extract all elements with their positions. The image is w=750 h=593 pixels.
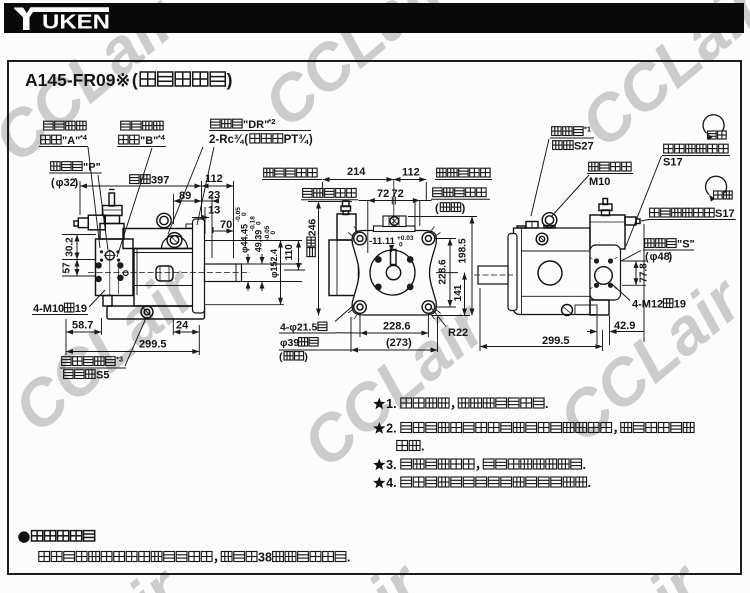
- svg-text:19: 19: [674, 299, 686, 311]
- svg-text:4-φ21.5: 4-φ21.5: [280, 322, 317, 334]
- svg-text:M10: M10: [589, 176, 610, 188]
- svg-text:φ44.45: φ44.45: [240, 224, 250, 253]
- svg-text:1.: 1.: [386, 397, 396, 411]
- svg-text:0: 0: [270, 231, 277, 235]
- svg-text:): ): [462, 203, 466, 215]
- svg-text:S27: S27: [574, 141, 594, 153]
- svg-text:.: .: [583, 458, 586, 472]
- svg-text:CCLair: CCLair: [0, 251, 213, 446]
- svg-text:*4: *4: [80, 133, 88, 142]
- svg-text:S17: S17: [715, 208, 735, 220]
- svg-text:4-M10: 4-M10: [33, 303, 64, 315]
- svg-text:(: (: [435, 203, 439, 215]
- svg-text:"S": "S": [677, 239, 695, 251]
- svg-text:72: 72: [377, 188, 389, 200]
- svg-text:"DR": "DR": [243, 119, 269, 131]
- svg-text:0: 0: [399, 242, 403, 249]
- svg-text:.: .: [588, 476, 591, 490]
- svg-text:19: 19: [75, 303, 87, 315]
- svg-text:(: (: [244, 134, 248, 146]
- svg-text:R22: R22: [448, 327, 468, 339]
- svg-text:，: ，: [213, 551, 226, 565]
- svg-text:198.5: 198.5: [458, 238, 469, 263]
- svg-text:，: ，: [475, 458, 488, 472]
- svg-text:*2: *2: [268, 117, 275, 126]
- svg-text:φ39: φ39: [280, 337, 299, 349]
- svg-text:299.5: 299.5: [139, 339, 167, 351]
- svg-text:S5: S5: [96, 370, 109, 382]
- svg-text:112: 112: [402, 167, 420, 179]
- svg-text:13: 13: [208, 205, 220, 217]
- svg-text:): ): [74, 177, 78, 189]
- svg-text:2.: 2.: [386, 422, 396, 436]
- svg-text:24: 24: [176, 320, 189, 332]
- svg-text:(: (: [51, 177, 55, 189]
- svg-text:φ152.4: φ152.4: [269, 249, 279, 278]
- svg-text:*4: *4: [158, 133, 166, 142]
- svg-text:): ): [227, 70, 233, 90]
- svg-text:S17: S17: [663, 157, 683, 169]
- svg-text:"A": "A": [62, 135, 80, 147]
- svg-text:(273): (273): [386, 337, 412, 349]
- svg-text:228.6: 228.6: [438, 259, 449, 284]
- svg-text:φ32: φ32: [56, 177, 76, 189]
- svg-text:"B": "B": [140, 135, 158, 147]
- svg-text:246: 246: [306, 219, 318, 237]
- svg-text:214: 214: [347, 166, 366, 178]
- svg-text:.: .: [421, 440, 424, 454]
- svg-text:2-Rc¾: 2-Rc¾: [209, 134, 245, 146]
- svg-text:*3: *3: [116, 354, 123, 363]
- svg-text:): ): [668, 251, 672, 263]
- svg-text:30.2: 30.2: [65, 237, 76, 257]
- svg-text:58.7: 58.7: [72, 320, 93, 332]
- svg-text:.: .: [545, 397, 548, 411]
- svg-text:*1: *1: [584, 124, 591, 133]
- svg-text:CCLair: CCLair: [505, 546, 718, 593]
- svg-text:，: ，: [613, 422, 626, 436]
- svg-text:0: 0: [256, 221, 263, 225]
- svg-text:70: 70: [220, 219, 232, 231]
- svg-text:，: ，: [450, 397, 463, 411]
- svg-text:φ48: φ48: [650, 251, 670, 263]
- svg-text:42.9: 42.9: [614, 320, 635, 332]
- svg-text:228.6: 228.6: [383, 321, 411, 333]
- svg-text:49.39: 49.39: [254, 230, 264, 253]
- svg-text:PT¾: PT¾: [284, 134, 310, 146]
- svg-text:"P": "P": [83, 162, 101, 174]
- svg-text:72: 72: [392, 188, 404, 200]
- svg-text:4.: 4.: [386, 476, 396, 490]
- svg-text:57: 57: [62, 262, 73, 274]
- svg-text:0: 0: [241, 212, 248, 216]
- svg-text:38: 38: [258, 551, 272, 565]
- svg-text:110: 110: [284, 244, 295, 261]
- svg-text:397: 397: [151, 175, 169, 187]
- svg-text:.: .: [347, 551, 350, 565]
- svg-text:): ): [304, 351, 308, 363]
- svg-text:299.5: 299.5: [542, 335, 570, 347]
- svg-text:): ): [309, 134, 313, 146]
- svg-text:3.: 3.: [386, 458, 396, 472]
- svg-text:(: (: [279, 351, 283, 363]
- svg-text:UKEN: UKEN: [42, 12, 110, 34]
- svg-text:(: (: [132, 70, 138, 90]
- svg-text:141: 141: [453, 284, 464, 301]
- svg-text:A145-FR09※: A145-FR09※: [25, 70, 130, 90]
- svg-text:CCLair: CCLair: [0, 551, 198, 593]
- svg-text:23: 23: [208, 190, 220, 202]
- svg-text:4-M12: 4-M12: [632, 299, 663, 311]
